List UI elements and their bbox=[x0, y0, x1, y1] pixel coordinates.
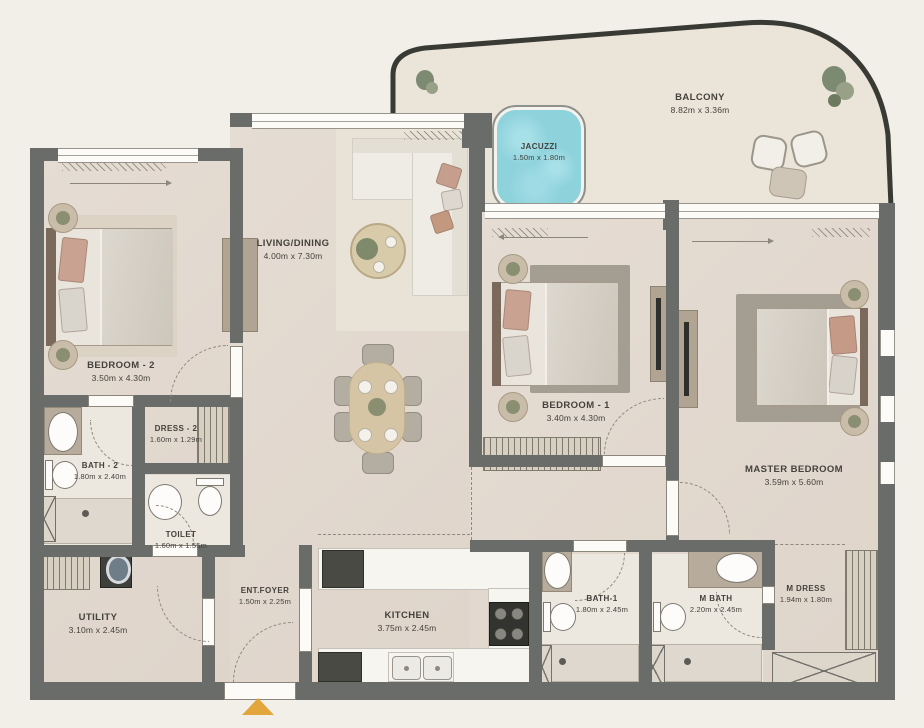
window bbox=[252, 113, 464, 129]
m-bath-sink bbox=[716, 553, 758, 583]
room-name: KITCHEN bbox=[347, 610, 467, 623]
bedroom-2-pillow bbox=[58, 237, 88, 283]
wall bbox=[30, 148, 60, 161]
wall bbox=[30, 682, 224, 700]
wall bbox=[469, 113, 485, 212]
master-pillow bbox=[828, 355, 858, 396]
master-duvet bbox=[757, 309, 829, 405]
dining-chair bbox=[362, 452, 394, 474]
room-name: BEDROOM - 1 bbox=[516, 400, 636, 413]
dining-plate bbox=[384, 380, 398, 394]
shower-head-icon bbox=[559, 658, 566, 665]
room-dims: 1.60m x 1.55m bbox=[136, 541, 226, 551]
bedroom-1-duvet bbox=[545, 283, 618, 385]
window bbox=[880, 330, 895, 356]
coffee-table-cup bbox=[373, 261, 385, 273]
entrance-arrow-icon bbox=[242, 698, 274, 715]
bedroom-2-duvet bbox=[100, 229, 173, 345]
room-dims: 3.40m x 4.30m bbox=[516, 413, 636, 424]
room-dims: 3.10m x 2.45m bbox=[48, 625, 148, 636]
dress-2-label: DRESS - 2 1.60m x 1.29m bbox=[131, 424, 221, 445]
dining-plate bbox=[358, 428, 372, 442]
sliding-door bbox=[679, 203, 879, 219]
sliding-door bbox=[485, 203, 665, 219]
bath-2-sink bbox=[48, 412, 78, 452]
room-name: LIVING/DINING bbox=[233, 238, 353, 251]
toilet-room-toilet bbox=[198, 486, 222, 516]
bedroom-2-headboard bbox=[46, 228, 56, 346]
jacuzzi-label: JACUZZI 1.50m x 1.80m bbox=[494, 142, 584, 163]
bedroom-2-label: BEDROOM - 2 3.50m x 4.30m bbox=[61, 360, 181, 384]
room-dims: 1.94m x 1.80m bbox=[761, 595, 851, 605]
dining-plate bbox=[384, 428, 398, 442]
master-bedroom-label: MASTER BEDROOM 3.59m x 5.60m bbox=[724, 464, 864, 488]
dining-plate bbox=[358, 380, 372, 394]
room-name: MASTER BEDROOM bbox=[724, 464, 864, 477]
wall bbox=[666, 217, 679, 480]
threshold-hatch bbox=[62, 163, 166, 171]
door-bath-2 bbox=[88, 395, 134, 407]
wall bbox=[482, 455, 602, 467]
master-nightstand bbox=[840, 280, 869, 309]
bath-1-sink bbox=[544, 552, 571, 589]
wall bbox=[762, 540, 775, 586]
floor-plan: BALCONY 8.82m x 3.36m JACUZZI 1.50m x 1.… bbox=[0, 0, 924, 728]
sofa-pillow bbox=[440, 188, 463, 211]
ent-foyer-label: ENT.FOYER 1.50m x 2.25m bbox=[215, 586, 315, 607]
toilet-label: TOILET 1.60m x 1.55m bbox=[136, 530, 226, 551]
slide-arrow bbox=[692, 241, 768, 242]
wall bbox=[230, 400, 243, 557]
wall bbox=[469, 212, 482, 467]
bedroom-1-headboard bbox=[492, 282, 501, 386]
master-nightstand bbox=[840, 407, 869, 436]
room-name: ENT.FOYER bbox=[215, 586, 315, 597]
bath-1-label: BATH-1 1.80m x 2.45m bbox=[552, 594, 652, 615]
bedroom-1-pillow bbox=[502, 335, 532, 377]
room-name: BEDROOM - 2 bbox=[61, 360, 181, 373]
door-master bbox=[666, 480, 679, 536]
room-dims: 3.75m x 2.45m bbox=[347, 623, 467, 634]
wall bbox=[30, 395, 90, 407]
door-bedroom-1 bbox=[602, 455, 666, 467]
wall bbox=[202, 646, 215, 700]
wall bbox=[639, 540, 652, 700]
sink-basin-icon bbox=[423, 656, 452, 680]
slide-arrow bbox=[70, 183, 166, 184]
wall bbox=[145, 463, 243, 474]
door-bath-1 bbox=[573, 540, 627, 552]
room-dims: 1.50m x 2.25m bbox=[215, 597, 315, 607]
coffee-table-cup bbox=[385, 236, 397, 248]
wall bbox=[299, 545, 312, 588]
bedroom-1-nightstand bbox=[498, 254, 528, 284]
open-plan-divider bbox=[775, 544, 845, 547]
wall bbox=[299, 652, 312, 700]
stove-icon bbox=[489, 602, 529, 646]
balcony-plant-icon bbox=[426, 82, 438, 94]
room-dims: 1.50m x 1.80m bbox=[494, 153, 584, 163]
m-dress-label: M DRESS 1.94m x 1.80m bbox=[761, 584, 851, 605]
room-name: DRESS - 2 bbox=[131, 424, 221, 435]
room-name: M DRESS bbox=[761, 584, 851, 595]
balcony-table bbox=[768, 166, 808, 201]
wall bbox=[666, 536, 679, 552]
room-name: BATH - 2 bbox=[52, 461, 148, 472]
room-name: JACUZZI bbox=[494, 142, 584, 153]
window bbox=[58, 148, 198, 163]
wall bbox=[30, 148, 44, 700]
room-dims: 1.80m x 2.40m bbox=[52, 472, 148, 482]
m-bath-label: M BATH 2.20m x 2.45m bbox=[666, 594, 766, 615]
room-name: UTILITY bbox=[48, 612, 148, 625]
slide-arrow bbox=[504, 237, 588, 238]
arrow-head-icon bbox=[166, 180, 172, 186]
bedroom-2-nightstand bbox=[48, 203, 78, 233]
sofa-back-cushion bbox=[353, 139, 467, 153]
threshold-hatch bbox=[492, 228, 548, 237]
bedroom-1-pillow bbox=[502, 289, 531, 331]
room-dims: 1.60m x 1.29m bbox=[131, 435, 221, 445]
room-dims: 2.20m x 2.45m bbox=[666, 605, 766, 615]
room-name: M BATH bbox=[666, 594, 766, 605]
threshold-hatch bbox=[404, 131, 462, 140]
bedroom-1-label: BEDROOM - 1 3.40m x 4.30m bbox=[516, 400, 636, 424]
room-dims: 3.50m x 4.30m bbox=[61, 373, 181, 384]
room-name: BALCONY bbox=[640, 92, 760, 105]
bath-2-shower bbox=[44, 498, 133, 544]
bath-1-shower bbox=[542, 644, 639, 682]
dining-plant-icon bbox=[368, 398, 386, 416]
utility-label: UTILITY 3.10m x 2.45m bbox=[48, 612, 148, 636]
wall bbox=[296, 682, 895, 700]
room-dims: 4.00m x 7.30m bbox=[233, 251, 353, 262]
master-pillow bbox=[828, 315, 857, 355]
door-bedroom-2 bbox=[230, 346, 243, 398]
wall bbox=[878, 203, 895, 700]
room-dims: 3.59m x 5.60m bbox=[724, 477, 864, 488]
room-name: TOILET bbox=[136, 530, 226, 541]
oven-icon bbox=[318, 652, 362, 682]
fridge-icon bbox=[322, 550, 364, 588]
window bbox=[880, 462, 895, 484]
sink-basin-icon bbox=[392, 656, 421, 680]
master-headboard bbox=[860, 308, 868, 406]
shower-head-icon bbox=[684, 658, 691, 665]
balcony-label: BALCONY 8.82m x 3.36m bbox=[640, 92, 760, 116]
wall bbox=[470, 540, 573, 552]
m-bath-shower bbox=[652, 644, 762, 682]
open-plan-divider bbox=[471, 467, 474, 540]
wall bbox=[529, 540, 542, 700]
wall bbox=[230, 113, 254, 127]
shower-head-icon bbox=[82, 510, 89, 517]
room-dims: 1.80m x 2.45m bbox=[552, 605, 652, 615]
room-dims: 8.82m x 3.36m bbox=[640, 105, 760, 116]
dining-chair bbox=[402, 376, 422, 406]
threshold-hatch bbox=[812, 228, 870, 237]
toilet-tank-icon bbox=[196, 478, 224, 486]
living-dining-label: LIVING/DINING 4.00m x 7.30m bbox=[233, 238, 353, 262]
tv-screen-icon bbox=[684, 322, 689, 396]
wall bbox=[30, 545, 152, 557]
open-plan-divider bbox=[318, 534, 470, 537]
room-name: BATH-1 bbox=[552, 594, 652, 605]
balcony-plant-icon bbox=[828, 94, 841, 107]
dining-chair bbox=[402, 412, 422, 442]
window bbox=[880, 396, 895, 422]
bath-2-label: BATH - 2 1.80m x 2.40m bbox=[52, 461, 148, 482]
coffee-table-plant-icon bbox=[356, 238, 378, 260]
kitchen-label: KITCHEN 3.75m x 2.45m bbox=[347, 610, 467, 634]
arrow-head-icon bbox=[768, 238, 774, 244]
tv-screen-icon bbox=[656, 298, 661, 370]
bedroom-2-pillow bbox=[58, 287, 88, 333]
